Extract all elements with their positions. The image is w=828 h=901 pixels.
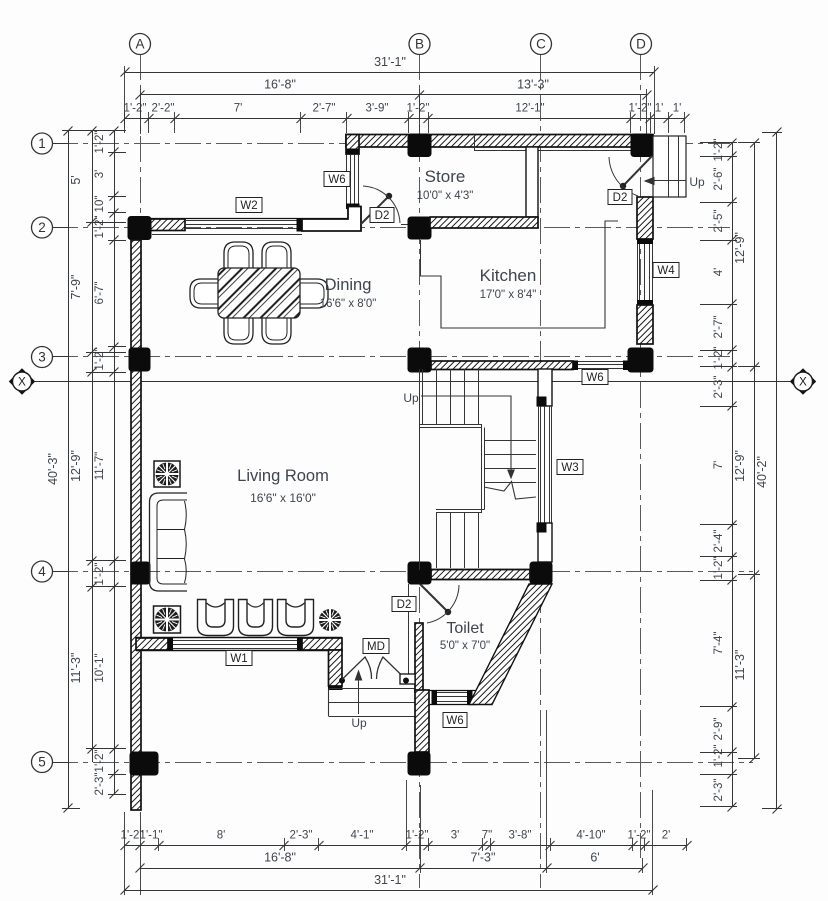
svg-text:2'-4": 2'-4" [713, 530, 725, 553]
svg-text:1'-2": 1'-2" [713, 557, 725, 580]
svg-text:1'-2": 1'-2" [94, 131, 106, 154]
svg-text:7'-4": 7'-4" [713, 632, 725, 655]
svg-text:1'-2": 1'-2" [713, 139, 725, 162]
svg-text:2'-3": 2'-3" [94, 773, 106, 796]
svg-text:Up: Up [403, 391, 419, 405]
svg-text:1'-1": 1'-1" [140, 830, 163, 842]
svg-text:12'-9": 12'-9" [69, 450, 83, 482]
svg-text:C: C [536, 37, 546, 52]
svg-text:X: X [18, 377, 26, 389]
svg-text:1': 1' [673, 103, 682, 115]
svg-text:1'-2": 1'-2" [407, 103, 430, 115]
svg-text:B: B [415, 37, 424, 52]
svg-text:10'-1": 10'-1" [94, 653, 106, 682]
svg-text:A: A [135, 37, 144, 52]
svg-text:W3: W3 [561, 462, 578, 474]
svg-text:3': 3' [94, 170, 106, 179]
svg-text:10'0" x 4'3": 10'0" x 4'3" [417, 190, 474, 202]
svg-text:1': 1' [655, 103, 664, 115]
svg-text:12'-1": 12'-1" [515, 103, 544, 115]
svg-text:2'-9": 2'-9" [713, 718, 725, 741]
svg-text:2'-7": 2'-7" [713, 316, 725, 339]
svg-text:4'-10": 4'-10" [576, 830, 605, 842]
svg-text:31'-1": 31'-1" [374, 873, 406, 887]
svg-text:2: 2 [38, 220, 46, 235]
svg-text:1'-2": 1'-2" [94, 750, 106, 773]
svg-text:3': 3' [451, 830, 460, 842]
svg-text:12'-9": 12'-9" [733, 232, 747, 264]
svg-text:2'-3": 2'-3" [713, 779, 725, 802]
svg-text:3'-8": 3'-8" [509, 830, 532, 842]
svg-text:1'-2": 1'-2" [406, 830, 429, 842]
svg-text:D2: D2 [613, 192, 628, 204]
svg-text:Kitchen: Kitchen [480, 266, 537, 285]
svg-text:1'-2": 1'-2" [94, 216, 106, 239]
svg-text:6': 6' [590, 851, 599, 865]
svg-text:2'-6": 2'-6" [713, 168, 725, 191]
svg-text:11'-3": 11'-3" [733, 650, 747, 681]
svg-text:6'-7": 6'-7" [94, 282, 106, 305]
svg-text:1'-2": 1'-2" [94, 348, 106, 371]
svg-text:Up: Up [689, 175, 705, 189]
svg-text:4: 4 [38, 564, 46, 579]
svg-text:17'0" x 8'4": 17'0" x 8'4" [480, 289, 537, 301]
svg-text:13'-3": 13'-3" [517, 78, 549, 92]
svg-text:31'-1": 31'-1" [374, 55, 406, 69]
svg-text:7'-3": 7'-3" [471, 851, 496, 865]
svg-text:1'-2": 1'-2" [713, 745, 725, 768]
svg-text:2'-2": 2'-2" [152, 103, 175, 115]
svg-text:3'-9": 3'-9" [366, 103, 389, 115]
svg-text:W1: W1 [230, 653, 247, 665]
svg-text:3: 3 [38, 350, 46, 365]
svg-text:7': 7' [713, 461, 725, 470]
svg-text:1'-2": 1'-2" [124, 103, 147, 115]
svg-text:2': 2' [662, 830, 671, 842]
svg-text:12'-9": 12'-9" [733, 450, 747, 482]
svg-text:11'-7": 11'-7" [94, 452, 106, 480]
svg-text:40'-3": 40'-3" [46, 453, 60, 485]
svg-text:1'-2": 1'-2" [94, 563, 106, 586]
svg-text:2'-5": 2'-5" [713, 210, 725, 233]
svg-text:D2: D2 [397, 599, 412, 611]
svg-text:11'-3": 11'-3" [69, 653, 83, 684]
svg-text:1'-2": 1'-2" [628, 830, 651, 842]
svg-text:Living Room: Living Room [237, 467, 329, 485]
svg-text:Toilet: Toilet [446, 620, 484, 637]
svg-text:Up: Up [351, 716, 367, 730]
svg-text:7': 7' [234, 103, 243, 115]
svg-text:MD: MD [367, 641, 385, 653]
svg-text:16'6" x 8'0": 16'6" x 8'0" [320, 298, 377, 310]
svg-text:10": 10" [94, 196, 106, 213]
svg-text:W6: W6 [446, 715, 463, 727]
svg-text:W6: W6 [328, 174, 345, 186]
svg-text:16'6" x 16'0": 16'6" x 16'0" [250, 491, 316, 505]
svg-text:2'-3": 2'-3" [290, 830, 313, 842]
svg-text:1: 1 [38, 136, 46, 151]
svg-text:1'-2": 1'-2" [629, 103, 652, 115]
svg-text:5: 5 [38, 755, 46, 770]
svg-text:D: D [636, 37, 646, 52]
svg-text:7'-9": 7'-9" [69, 275, 83, 300]
svg-text:16'-8": 16'-8" [264, 851, 296, 865]
svg-text:4'-1": 4'-1" [351, 830, 374, 842]
svg-text:Store: Store [425, 167, 466, 186]
svg-text:8': 8' [217, 830, 226, 842]
svg-text:W2: W2 [240, 200, 257, 212]
svg-text:Dining: Dining [325, 276, 372, 294]
svg-text:W4: W4 [657, 265, 675, 277]
svg-text:W6: W6 [586, 372, 603, 384]
svg-text:5': 5' [69, 175, 83, 184]
svg-text:2'-7": 2'-7" [313, 103, 336, 115]
svg-text:2'-3": 2'-3" [713, 376, 725, 399]
svg-text:16'-8": 16'-8" [264, 78, 296, 92]
svg-text:40'-2": 40'-2" [755, 456, 769, 488]
svg-text:1'-2": 1'-2" [713, 347, 725, 370]
svg-text:5'0" x 7'0": 5'0" x 7'0" [440, 640, 490, 652]
svg-text:4': 4' [713, 268, 725, 277]
svg-text:D2: D2 [375, 210, 390, 222]
svg-text:X: X [799, 377, 807, 389]
